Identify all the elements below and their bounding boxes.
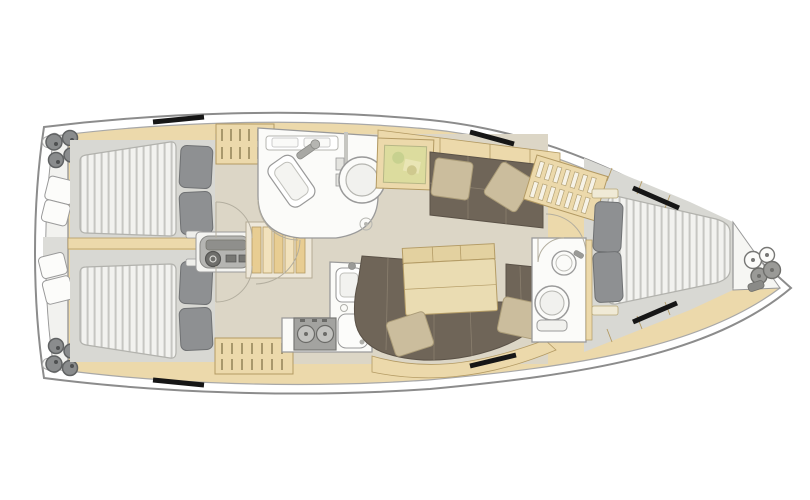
berth-shelf: [592, 306, 618, 315]
shelf-tray: [272, 138, 298, 147]
toilet: [535, 286, 569, 331]
wardrobe-starboard: [215, 338, 293, 374]
stove: [294, 318, 336, 350]
pillow: [179, 307, 213, 351]
berth-mattress: [80, 142, 176, 236]
engine-instrument-panel: [196, 232, 254, 272]
pillow: [179, 145, 213, 189]
floor-plan-canvas: [0, 0, 810, 500]
yacht-floor-plan: [0, 0, 810, 500]
pillow: [593, 201, 624, 252]
chart-table: [376, 138, 434, 190]
aft-cabin-starboard: [80, 259, 213, 358]
aft-cabin-divider-wall: [68, 238, 215, 249]
berth-mattress: [80, 264, 176, 358]
head-wall: [586, 240, 592, 340]
salon-table: [402, 244, 497, 316]
pillow: [593, 251, 624, 302]
pillow: [179, 191, 213, 235]
aft-head: [258, 128, 385, 238]
settee-pillow: [431, 158, 474, 201]
forward-head: [532, 238, 592, 342]
berth-shelf: [592, 189, 618, 198]
